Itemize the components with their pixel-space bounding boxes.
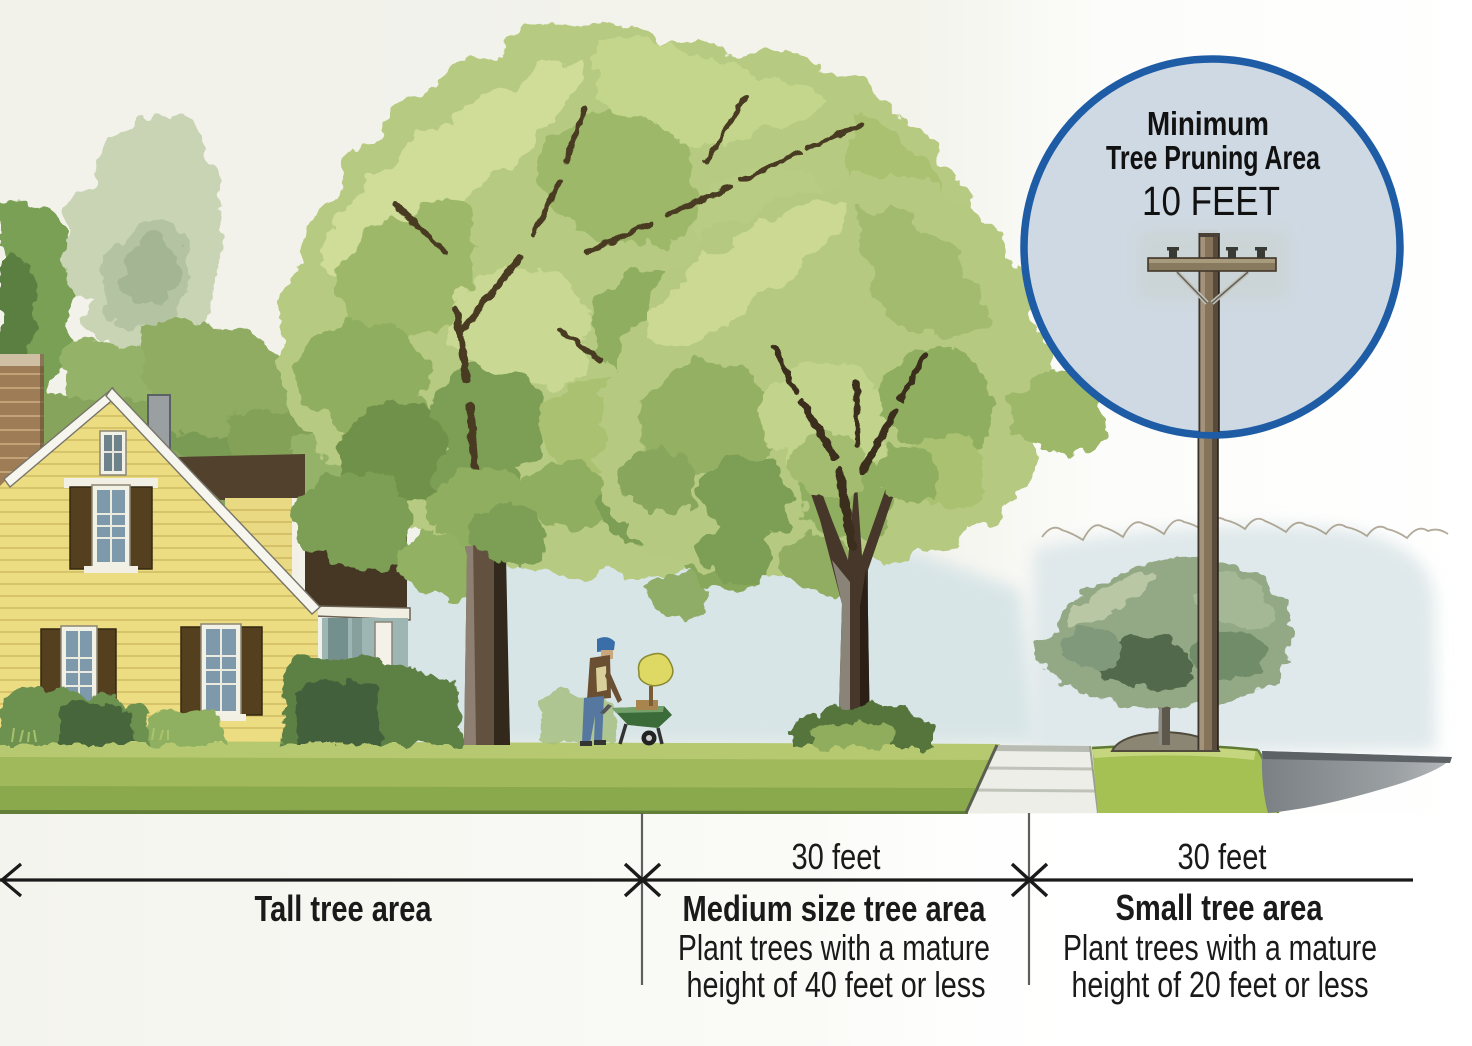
svg-text:Plant trees with a mature: Plant trees with a mature — [1063, 927, 1377, 968]
svg-text:30 feet: 30 feet — [1178, 836, 1267, 877]
svg-text:Tree Pruning Area: Tree Pruning Area — [1106, 139, 1320, 176]
svg-text:Minimum: Minimum — [1147, 105, 1269, 142]
svg-text:Small tree area: Small tree area — [1116, 887, 1324, 928]
svg-text:height of 20 feet or less: height of 20 feet or less — [1072, 964, 1369, 1005]
svg-text:30 feet: 30 feet — [792, 836, 881, 877]
svg-text:10 FEET: 10 FEET — [1142, 178, 1280, 224]
svg-text:Tall tree area: Tall tree area — [255, 888, 433, 929]
svg-text:Plant trees with a mature: Plant trees with a mature — [678, 927, 990, 968]
svg-text:Medium size tree area: Medium size tree area — [683, 888, 987, 929]
svg-text:height of 40 feet or less: height of 40 feet or less — [687, 964, 986, 1005]
